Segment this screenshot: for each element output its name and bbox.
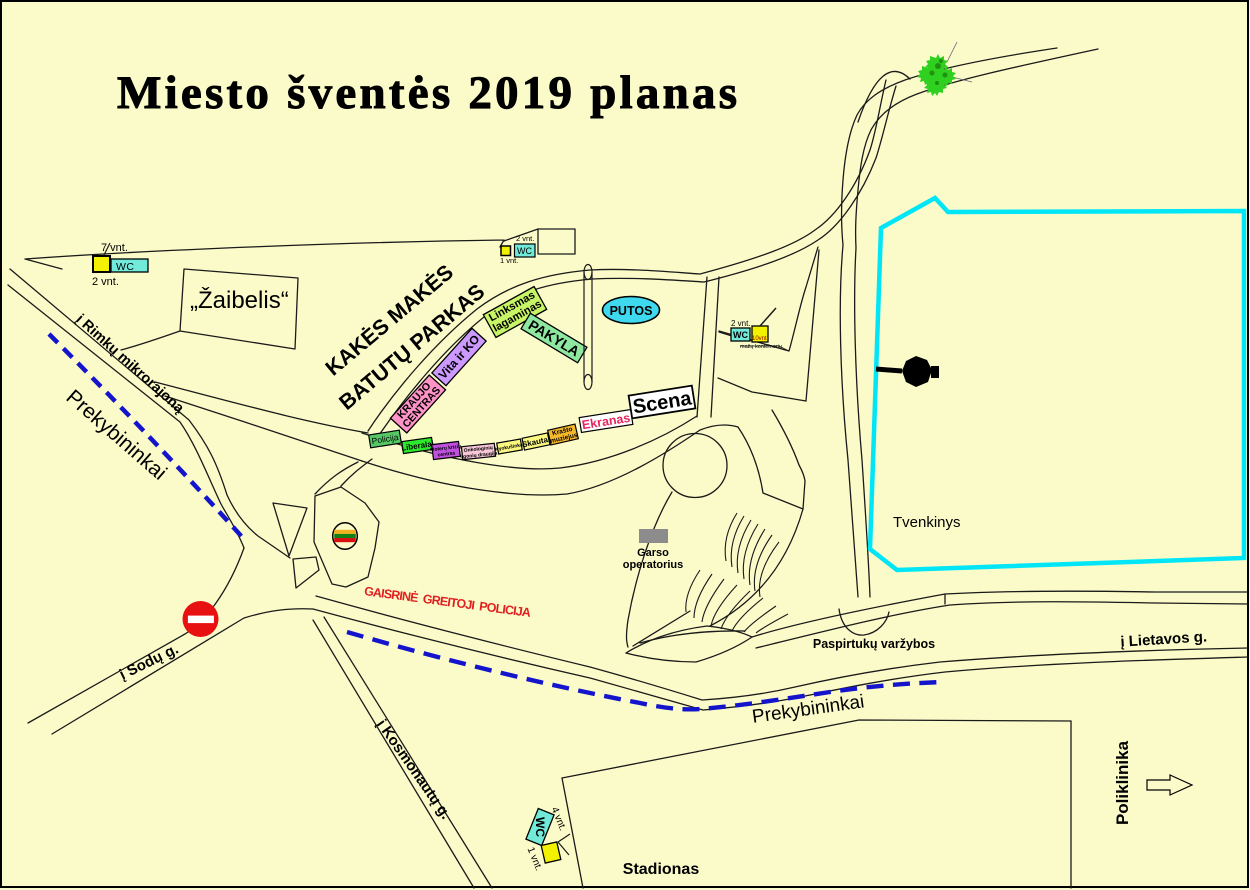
svg-text:WC: WC (533, 817, 547, 837)
svg-text:WC: WC (733, 330, 748, 340)
svg-text:2 vnt.: 2 vnt. (731, 319, 751, 328)
svg-text:10vnt: 10vnt (752, 336, 767, 342)
svg-text:operatorius: operatorius (623, 559, 684, 571)
svg-text:WC: WC (116, 261, 135, 273)
svg-text:7 vnt.: 7 vnt. (101, 242, 128, 254)
svg-text:PUTOS: PUTOS (610, 304, 653, 318)
svg-text:Stadionas: Stadionas (623, 861, 700, 878)
svg-text:WC: WC (517, 246, 532, 256)
svg-text:1 vnt.: 1 vnt. (500, 256, 518, 265)
svg-text:Tvenkinys: Tvenkinys (893, 514, 961, 531)
svg-text:Paspirtukų varžybos: Paspirtukų varžybos (813, 637, 935, 651)
svg-text:Garso: Garso (637, 547, 669, 559)
svg-text:2 vnt.: 2 vnt. (92, 276, 119, 288)
svg-text:2 vnt.: 2 vnt. (516, 234, 534, 243)
svg-text:mažų konteinerių: mažų konteinerių (740, 344, 782, 350)
svg-text:Poliklinika: Poliklinika (1113, 740, 1132, 825)
svg-text:„Žaibelis“: „Žaibelis“ (190, 287, 289, 314)
svg-text:Miesto šventės 2019 planas: Miesto šventės 2019 planas (117, 67, 737, 119)
